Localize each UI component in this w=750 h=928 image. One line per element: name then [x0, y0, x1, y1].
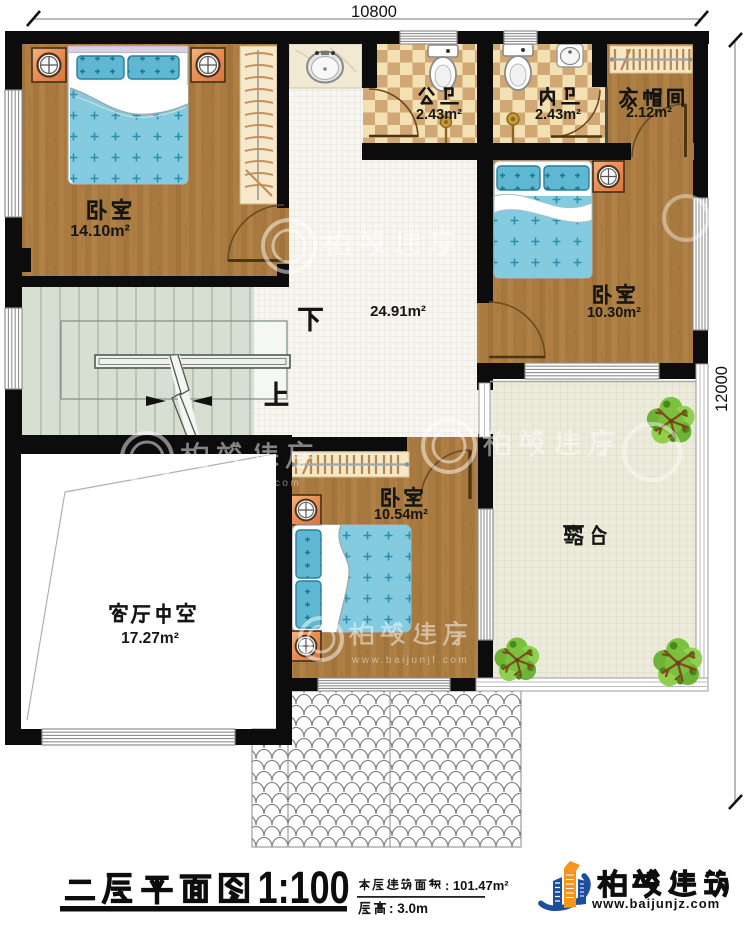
svg-text:2.43m²: 2.43m²	[535, 107, 581, 123]
svg-text:10.54m²: 10.54m²	[374, 507, 428, 523]
svg-text:: 3.0m: : 3.0m	[389, 901, 428, 916]
svg-text:www.baijunjf.com: www.baijunjf.com	[351, 655, 469, 666]
svg-text:www.baijunjz.com: www.baijunjz.com	[591, 896, 720, 911]
svg-text:10.30m²: 10.30m²	[587, 305, 641, 321]
svg-text:10800: 10800	[351, 3, 397, 21]
svg-text:24.91m²: 24.91m²	[370, 303, 426, 320]
svg-text:12000: 12000	[713, 366, 731, 412]
svg-text:14.10m²: 14.10m²	[70, 223, 130, 240]
svg-text:2.12m²: 2.12m²	[626, 105, 672, 121]
svg-text:17.27m²: 17.27m²	[121, 630, 179, 647]
svg-text:: 101.47m²: : 101.47m²	[445, 878, 509, 893]
svg-text:www.baijunjf.com: www.baijunjf.com	[183, 478, 301, 489]
svg-text:2.43m²: 2.43m²	[416, 107, 462, 123]
svg-text:1:100: 1:100	[258, 862, 350, 913]
